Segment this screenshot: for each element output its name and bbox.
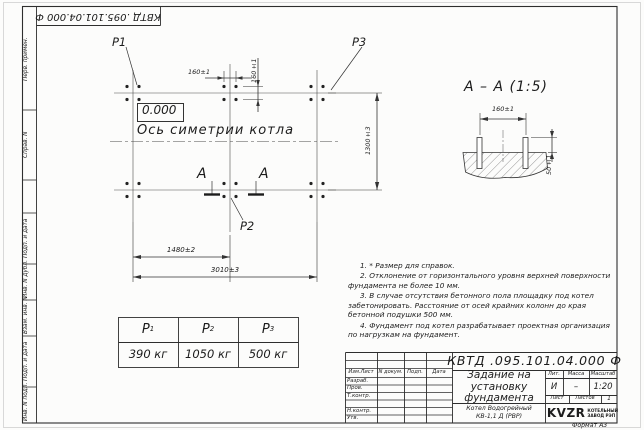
side-label-podp-data-2: Подп. и дата (23, 338, 36, 385)
sign-row-tkontr: Т.контр. (347, 394, 370, 400)
load-point-p3-label: Р3 (352, 36, 366, 48)
anchor-bolt-right (523, 138, 528, 169)
section-view-drawing (463, 113, 557, 178)
load-point-p2-label: P2 (240, 220, 254, 232)
dimension-lines (133, 58, 377, 277)
sign-row-prov: Пров. (347, 386, 363, 392)
load-point-p1-label: P1 (112, 36, 126, 48)
note-4: 4. Фундамент под котел разрабатывает про… (348, 321, 614, 340)
concrete-pad-hatch (463, 153, 548, 179)
logo-caption: КОТЕЛЬНЫЙ ЗАВОД РЭП (587, 408, 618, 418)
elevation-marker: 0.000 (137, 103, 184, 122)
notes-block: 1. * Размер для справок. 2. Отклонение о… (348, 261, 614, 341)
dim-mid-span-1480: 1480±2 (151, 246, 211, 255)
side-label-inv-dubl: Инв. N дубл. (23, 266, 36, 298)
sheet-label: Лист (545, 395, 569, 403)
dim-bolt-spacing-y: 160±1 (251, 55, 261, 87)
sign-row-nkontr: Н.контр. (347, 409, 371, 415)
change-col-podp: Подп. (404, 368, 426, 377)
change-col-n-dokum: N докум. (377, 368, 404, 377)
sheets-value: 1 (601, 395, 617, 403)
dim-depth-1300: 1300±3 (365, 119, 375, 163)
title-block-doc-title: Задание на установку фундамента (453, 371, 545, 403)
drawing-sheet: КВТД .095.101.04.000 Ф Перв. примен. Спр… (0, 0, 644, 430)
product-name: Котел Водогрейный КВ-1,1 Д (РВР) (453, 404, 545, 422)
load-table-value-p3: 500 кг (238, 343, 298, 366)
load-table-value-p2: 1050 кг (178, 343, 238, 366)
section-view-title: А – А (1:5) (464, 80, 548, 95)
side-label-sprav-n: Справ. N (23, 112, 36, 178)
load-table-header-p2: P2 (178, 319, 238, 341)
load-table-header-p1: P1 (118, 319, 178, 341)
side-label-inv-podl: Инв. N подл. (23, 389, 36, 421)
dim-bolt-spacing-x: 160±1 (180, 68, 218, 77)
logo-text: KVZR (547, 407, 586, 420)
sign-row-razrab: Разраб. (347, 379, 368, 385)
mass-label: Масса (563, 370, 589, 379)
plan-axis-lines (110, 64, 340, 232)
top-stamp-doc-number: КВТД .095.101.04.000 Ф (36, 6, 160, 25)
side-label-vzam-inv: Взам. инв. N (23, 302, 36, 334)
mass-value: – (563, 379, 589, 395)
sign-row-utv: Утв. (347, 416, 358, 422)
scale-label: Масштаб (589, 370, 617, 379)
note-1: 1. * Размер для справок. (348, 261, 614, 270)
anchor-bolt-left (477, 138, 482, 169)
note-3: 3. В случае отсутствия бетонного пола пл… (348, 291, 614, 319)
section-cut-marks (204, 181, 264, 195)
section-dim-protrusion: 50±1 (546, 152, 556, 178)
change-col-izm-list: Изм.Лист (345, 368, 377, 377)
change-col-data: Дата (426, 368, 452, 377)
format-note: Формат А3 (572, 423, 607, 430)
title-block-doc-number: КВТД .095.101.04.000 Ф (452, 352, 617, 370)
scale-value: 1:20 (589, 379, 617, 395)
lit-label: Лит. (545, 370, 563, 379)
side-label-podp-data-1: Подп. и дата (23, 215, 36, 262)
section-letter-right: А (259, 167, 269, 182)
sheets-label: Листов (569, 395, 601, 403)
note-2: 2. Отклонение от горизонтального уровня … (348, 271, 614, 290)
lit-value: И (545, 379, 563, 395)
section-letter-left: А (197, 167, 207, 182)
company-logo: KVZR КОТЕЛЬНЫЙ ЗАВОД РЭП (546, 404, 617, 422)
side-label-perv-primen: Перв. примен. (23, 10, 36, 108)
load-table-value-p1: 390 кг (118, 343, 178, 366)
section-dim-spacing: 160±1 (481, 105, 525, 114)
load-table-header-p3: P3 (238, 319, 298, 341)
symmetry-axis-caption: Ось симетрии котла (137, 124, 294, 138)
dim-total-span-3010: 3010±3 (195, 266, 255, 275)
